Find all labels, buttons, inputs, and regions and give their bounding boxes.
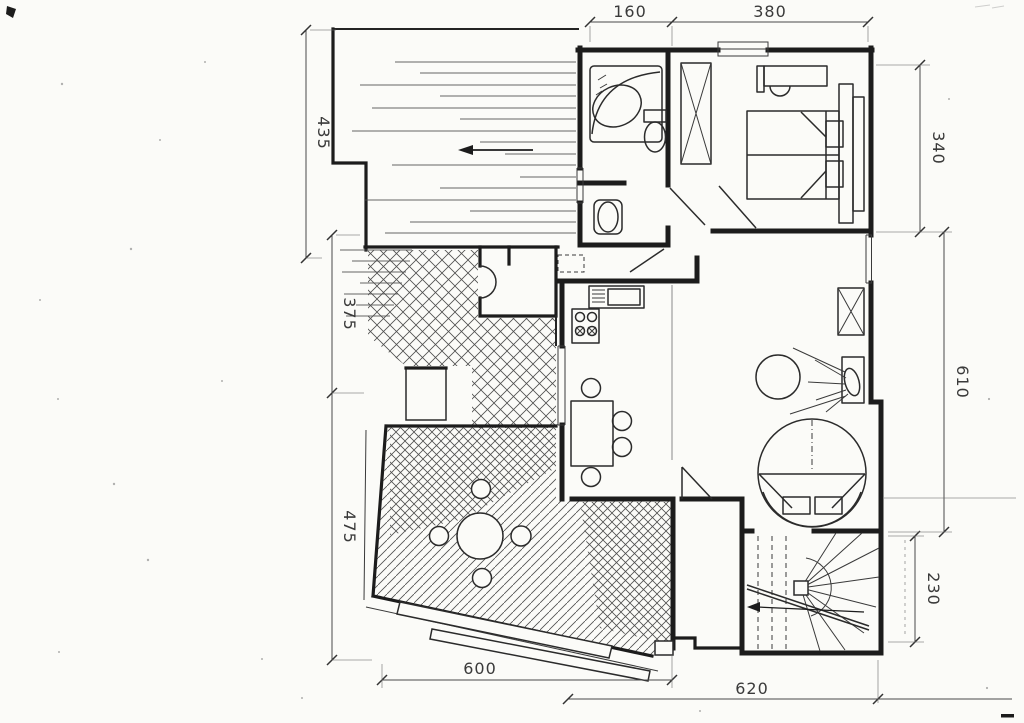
bathtub-icon: [586, 66, 662, 142]
entry-door-swing-icon: [480, 266, 496, 298]
wardrobe-icon: [838, 288, 864, 335]
dim-right-1: 340: [929, 131, 948, 165]
scanned-floor-plan-page: 160 380 435 375 475 340 610 230 600 620: [0, 0, 1024, 723]
stove-icon: [572, 309, 599, 343]
window: [866, 235, 872, 283]
dim-top-2: 380: [753, 2, 787, 21]
kitchen: [558, 249, 697, 499]
entry-step: [406, 368, 446, 420]
winder-stairs-icon: [747, 533, 879, 651]
door-sill: [655, 641, 673, 655]
washroom: [580, 188, 705, 245]
dim-top-1: 160: [613, 2, 647, 21]
newel-post: [794, 581, 808, 595]
sink-counter-icon: [589, 286, 644, 308]
chair-icon: [770, 86, 790, 96]
dim-right-2: 610: [953, 365, 972, 399]
door-leaf: [682, 467, 712, 499]
dim-left-3: 475: [340, 510, 359, 544]
headboard: [839, 84, 853, 223]
living-room: [682, 288, 881, 653]
dim-left-2: 375: [340, 297, 359, 331]
entry-closet: [480, 247, 556, 316]
dining-table-icon: [571, 379, 632, 487]
door-leaf: [719, 186, 756, 228]
entry-hall: [365, 247, 558, 428]
overhead-cabinet: [558, 255, 584, 272]
double-bed-icon: [747, 84, 864, 223]
dim-right-3: 230: [924, 572, 943, 606]
wall-lamp-icon: [790, 348, 864, 414]
dim-bottom-2: 620: [735, 679, 769, 698]
dim-left-1: 435: [314, 116, 333, 150]
wardrobe-icon: [681, 63, 711, 164]
door-leaf: [670, 188, 705, 225]
door-leaf: [630, 249, 664, 272]
sofa-icon: [758, 419, 866, 527]
floor-plan-drawing: 160 380 435 375 475 340 610 230 600 620: [0, 0, 1024, 723]
round-table-icon: [756, 355, 800, 399]
dim-bottom-1: 600: [463, 659, 497, 678]
staircase: [742, 500, 881, 653]
washbasin-icon: [594, 200, 622, 234]
desk-icon: [757, 66, 827, 96]
lower-terrace: [364, 426, 742, 681]
hall-tile-hatch: [368, 250, 556, 428]
direction-arrow-icon: [458, 145, 533, 155]
